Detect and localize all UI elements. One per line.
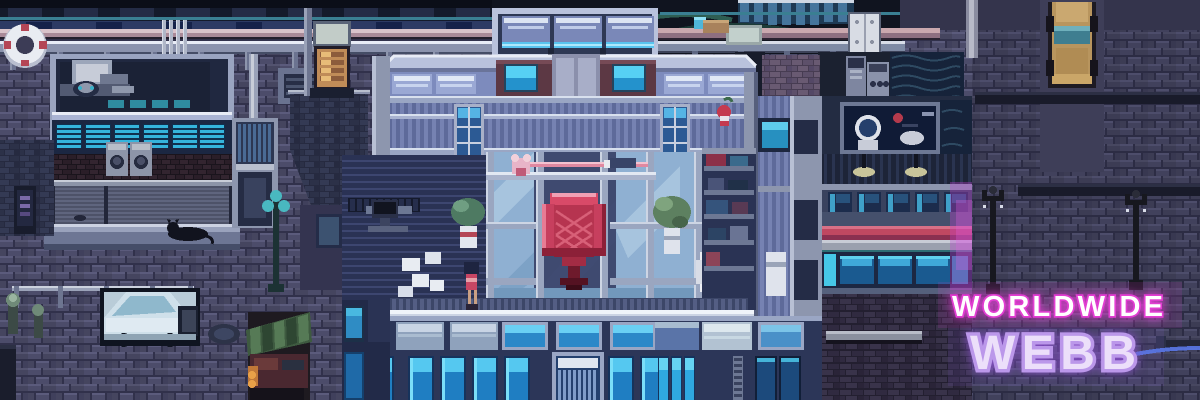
- svg-text:WEBB: WEBB: [970, 327, 1138, 380]
- svg-text:WORLDWIDE: WORLDWIDE: [952, 291, 1164, 323]
